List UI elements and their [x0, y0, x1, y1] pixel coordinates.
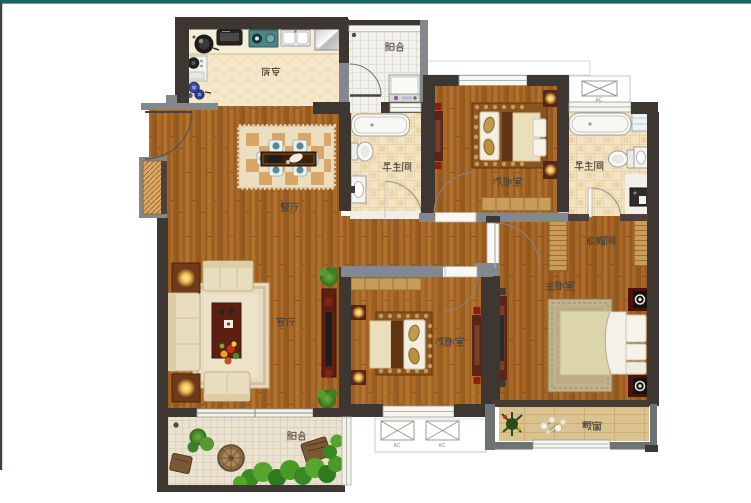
svg-text:AC: AC — [394, 443, 401, 449]
svg-text:AC: AC — [439, 443, 446, 449]
